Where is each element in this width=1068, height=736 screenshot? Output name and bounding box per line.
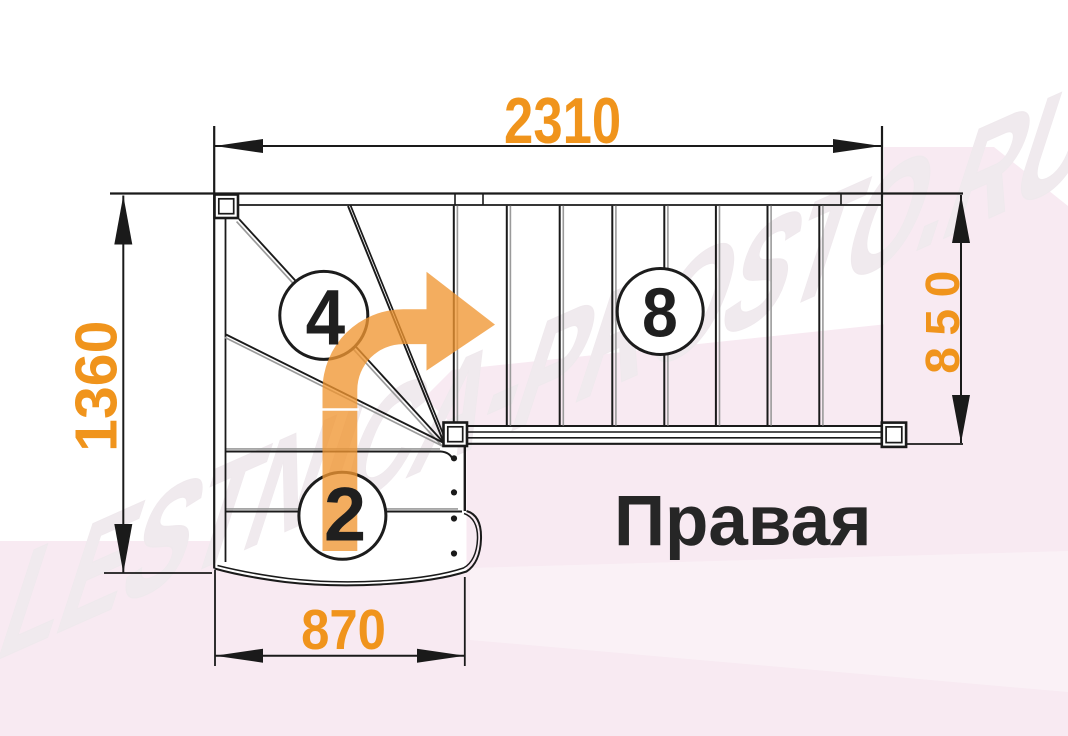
svg-text:2: 2 — [324, 473, 366, 558]
svg-text:1360: 1360 — [64, 321, 130, 452]
svg-text:8: 8 — [642, 274, 678, 352]
svg-text:870: 870 — [301, 599, 386, 662]
svg-text:Правая: Правая — [614, 482, 872, 561]
svg-text:850: 850 — [917, 259, 970, 374]
svg-text:2310: 2310 — [504, 84, 621, 158]
svg-text:4: 4 — [306, 273, 346, 361]
